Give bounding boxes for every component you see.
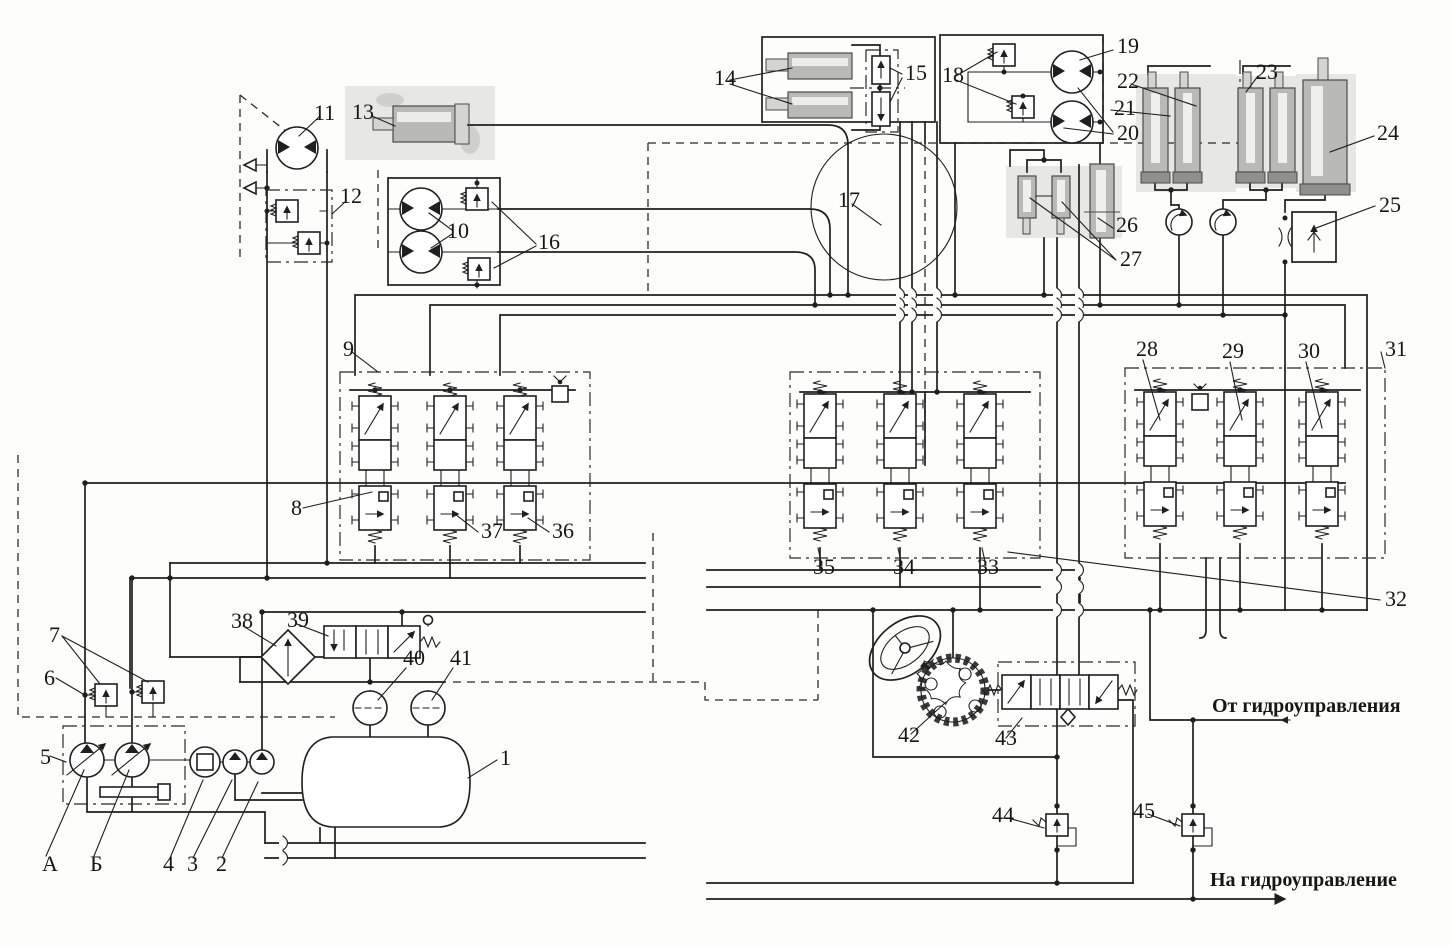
relief-valve-7b	[132, 681, 164, 717]
label-16: 16	[538, 229, 560, 254]
valve-45	[1169, 814, 1212, 846]
pump-A	[67, 743, 105, 777]
label-43: 43	[995, 725, 1017, 750]
label-23: 23	[1256, 59, 1278, 84]
brake-valve-block-12	[265, 190, 333, 262]
label-A: А	[42, 851, 58, 876]
label-44: 44	[992, 802, 1014, 827]
label-42: 42	[898, 722, 920, 747]
label-45: 45	[1133, 798, 1155, 823]
label-11: 11	[314, 100, 335, 125]
steering-valve-43	[983, 662, 1137, 726]
pump-B	[112, 743, 150, 777]
schematic-canvas: 1234567891011121314151617181920212223242…	[0, 0, 1452, 946]
label-34: 34	[893, 554, 915, 579]
label-B: Б	[90, 851, 103, 876]
label-28: 28	[1136, 336, 1158, 361]
label-22: 22	[1117, 68, 1139, 93]
label-37: 37	[481, 518, 503, 543]
flow-regulator-21	[1166, 209, 1192, 235]
tank-1	[302, 737, 470, 827]
label-14: 14	[714, 65, 736, 90]
filter-38	[261, 630, 315, 684]
label-1: 1	[500, 745, 511, 770]
hydraulic-schematic-page: 1234567891011121314151617181920212223242…	[0, 0, 1452, 946]
cylinder-14a	[766, 53, 852, 79]
valve-44	[1033, 814, 1076, 846]
label-9: 9	[343, 336, 354, 361]
label-38: 38	[231, 608, 253, 633]
relief-valve-6	[85, 684, 117, 717]
label-27: 27	[1120, 246, 1142, 271]
relief-valve-18b	[1007, 94, 1034, 123]
gauge-41	[411, 691, 445, 725]
valve-15b	[872, 92, 890, 126]
label-from_pilot: От гидроуправления	[1212, 695, 1401, 717]
label-17: 17	[838, 187, 860, 212]
pump-unit-5	[63, 726, 190, 804]
motor-19	[1051, 51, 1093, 93]
region-circle-17	[811, 134, 957, 280]
label-41: 41	[450, 645, 472, 670]
valve-bank-33-35	[790, 372, 1040, 558]
label-8: 8	[291, 495, 302, 520]
label-32: 32	[1385, 586, 1407, 611]
valve-bank-28-30-enclosure-31	[1125, 368, 1385, 558]
engine-4	[190, 747, 223, 777]
bank9-pilot-relief	[552, 376, 568, 402]
label-19: 19	[1117, 33, 1139, 58]
label-2: 2	[216, 851, 227, 876]
label-18: 18	[942, 62, 964, 87]
valve-block-25	[1279, 212, 1336, 265]
relief-valve-18a	[988, 44, 1015, 75]
label-6: 6	[44, 665, 55, 690]
label-to_pilot: На гидроуправление	[1210, 869, 1397, 891]
label-35: 35	[813, 554, 835, 579]
flow-regulator-23	[1210, 209, 1236, 235]
label-24: 24	[1377, 120, 1399, 145]
label-33: 33	[977, 554, 999, 579]
label-39: 39	[287, 607, 309, 632]
label-31: 31	[1385, 336, 1407, 361]
label-15: 15	[905, 60, 927, 85]
label-13: 13	[352, 99, 374, 124]
cylinder-26	[1084, 164, 1120, 238]
label-30: 30	[1298, 338, 1320, 363]
label-7: 7	[49, 622, 60, 647]
label-26: 26	[1116, 212, 1138, 237]
label-12: 12	[340, 183, 362, 208]
pump-2	[247, 750, 274, 774]
label-5: 5	[40, 744, 51, 769]
label-10: 10	[447, 218, 469, 243]
label-40: 40	[403, 645, 425, 670]
motor-20	[1051, 101, 1093, 143]
cylinder-14b	[766, 92, 852, 118]
label-4: 4	[163, 851, 174, 876]
label-21: 21	[1114, 95, 1136, 120]
pump-3	[223, 750, 247, 774]
valve-15a	[872, 56, 890, 84]
motor-11	[244, 127, 327, 194]
junction-dots	[82, 85, 1324, 901]
label-36: 36	[552, 518, 574, 543]
label-20: 20	[1117, 120, 1139, 145]
bank31-pilot-relief	[1192, 384, 1208, 410]
label-29: 29	[1222, 338, 1244, 363]
label-3: 3	[187, 851, 198, 876]
label-25: 25	[1379, 192, 1401, 217]
